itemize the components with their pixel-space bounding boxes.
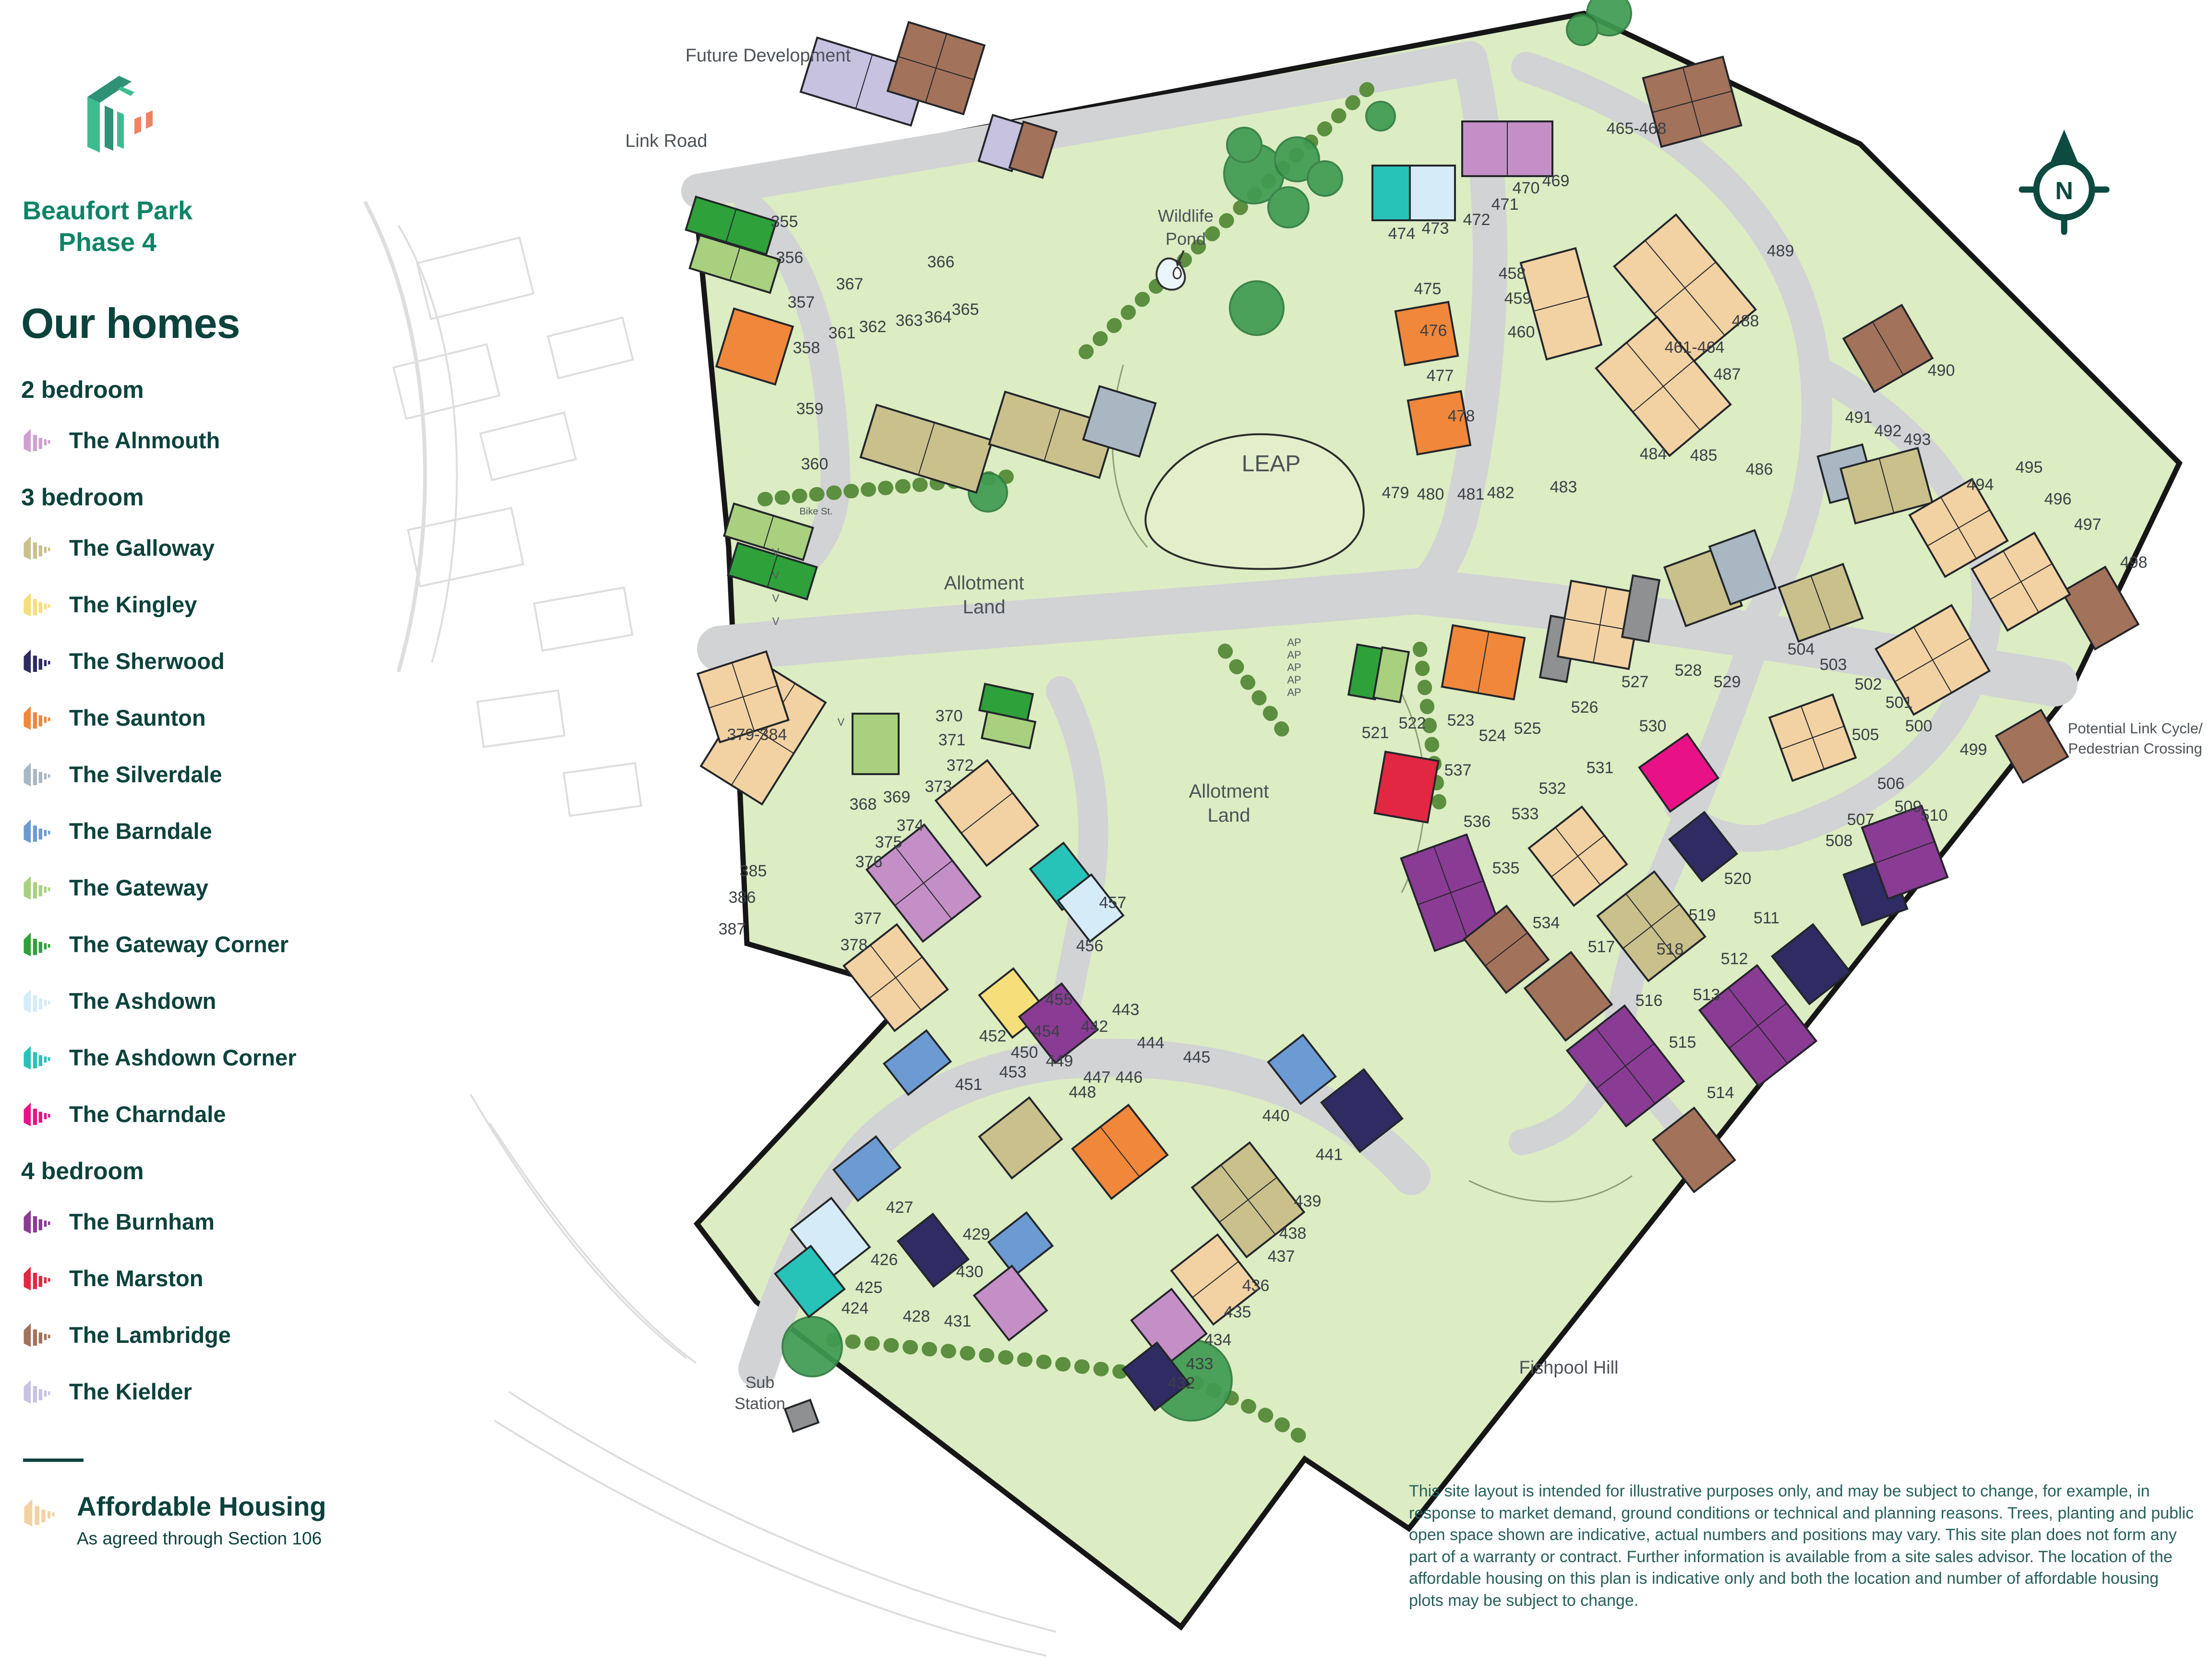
plot-number-375: 375 [875, 833, 902, 851]
plot-number-510: 510 [1921, 806, 1948, 825]
house-block-darkgray [785, 1400, 818, 1432]
plot-number-494: 494 [1967, 476, 1994, 494]
plot-number-490: 490 [1928, 361, 1955, 380]
plot-number-514: 514 [1707, 1084, 1734, 1102]
marker-ap: AP [1287, 649, 1301, 661]
plot-number-531: 531 [1587, 759, 1614, 777]
legend-sidebar: Beaufort Park Phase 4 Our homes 2 bedroo… [21, 67, 328, 1549]
legend-item-label: The Burnham [69, 1208, 215, 1235]
map-label-pond: Pond [1166, 229, 1206, 249]
legend-item-label: The Gateway Corner [69, 931, 289, 957]
plot-number-441: 441 [1316, 1146, 1343, 1164]
plot-number-482: 482 [1487, 484, 1515, 502]
plot-number-523: 523 [1447, 711, 1475, 729]
plot-number-435: 435 [1224, 1303, 1251, 1321]
plot-number-498: 498 [2120, 553, 2148, 572]
site-title-line2: Phase 4 [21, 227, 194, 259]
plot-number-427: 427 [886, 1198, 914, 1217]
affordable-housing-sublabel: As agreed through Section 106 [77, 1529, 326, 1549]
plot-number-443: 443 [1112, 1001, 1140, 1019]
house-block-marston [1375, 752, 1439, 822]
legend-item-the-alnmouth: The Alnmouth [21, 426, 328, 455]
legend-item-label: The Barndale [69, 818, 212, 844]
plot-number-436: 436 [1242, 1277, 1270, 1295]
plot-number-522: 522 [1399, 714, 1426, 732]
house-type-icon [21, 816, 53, 846]
plot-number-473: 473 [1422, 219, 1449, 238]
house-type-icon [21, 1207, 53, 1237]
plot-number-500: 500 [1905, 717, 1933, 735]
plot-number-360: 360 [801, 455, 829, 473]
plot-number-444: 444 [1137, 1034, 1165, 1052]
legend-item-label: The Marston [69, 1265, 203, 1291]
plot-number-454: 454 [1033, 1022, 1060, 1040]
house-type-icon [21, 986, 53, 1016]
plot-number-519: 519 [1689, 906, 1716, 924]
house-type-icon [21, 1495, 58, 1530]
map-label-wildlife: Wildlife [1158, 206, 1214, 226]
plot-number-536: 536 [1464, 813, 1491, 831]
legend-item-the-ashdown-corner: The Ashdown Corner [21, 1043, 328, 1073]
plot-number-372: 372 [947, 756, 974, 775]
plot-number-424: 424 [842, 1299, 869, 1317]
plot-number-386: 386 [729, 888, 756, 907]
plot-number-493: 493 [1904, 430, 1931, 449]
legend-divider [23, 1459, 84, 1462]
page-heading: Our homes [21, 299, 328, 348]
legend-item-the-charndale: The Charndale [21, 1100, 328, 1129]
legend-item-label: The Silverdale [69, 761, 222, 788]
plot-number-515: 515 [1669, 1033, 1696, 1052]
plot-number-499: 499 [1960, 741, 1987, 759]
house-block-ashdown [1410, 166, 1455, 220]
plot-number-481: 481 [1457, 485, 1485, 503]
plot-number-480: 480 [1417, 485, 1444, 503]
marker-ap: AP [1287, 686, 1301, 698]
legend-item-label: The Charndale [69, 1101, 226, 1127]
compass-north-icon: N [2022, 130, 2106, 232]
plot-number-497: 497 [2074, 515, 2102, 534]
plot-number-491: 491 [1845, 408, 1873, 427]
plot-number-425: 425 [855, 1279, 883, 1297]
map-label-future-development: Future Development [685, 46, 851, 66]
plot-number-429: 429 [963, 1225, 990, 1244]
plot-number-431: 431 [944, 1312, 972, 1330]
marker-v: V [838, 716, 845, 728]
legend-item-the-ashdown: The Ashdown [21, 986, 328, 1016]
plot-number-450: 450 [1011, 1043, 1038, 1062]
plot-number-465-468: 465-468 [1607, 120, 1667, 138]
svg-text:N: N [2055, 177, 2073, 205]
plot-number-448: 448 [1069, 1083, 1096, 1101]
plot-number-521: 521 [1362, 724, 1389, 742]
marker-ap: AP [1287, 661, 1301, 673]
house-type-icon [21, 930, 53, 959]
plot-number-452: 452 [979, 1027, 1007, 1045]
plot-number-456: 456 [1076, 937, 1104, 955]
map-label-leap: LEAP [1242, 451, 1301, 477]
plot-number-509: 509 [1895, 798, 1922, 816]
legend-item-affordable-housing: Affordable Housing As agreed through Sec… [21, 1491, 328, 1549]
house-block-saunton [1442, 625, 1525, 699]
map-label-bike-st-: Bike St. [800, 506, 833, 517]
legend-item-the-galloway: The Galloway [21, 533, 328, 563]
plot-number-451: 451 [955, 1076, 983, 1094]
legend-sections: 2 bedroomThe Alnmouth3 bedroomThe Gallow… [21, 376, 328, 1407]
plot-number-506: 506 [1877, 775, 1905, 793]
section-label-4-bedroom: 4 bedroom [21, 1157, 328, 1185]
plot-number-486: 486 [1746, 460, 1773, 478]
brand-logo-icon [73, 67, 169, 158]
house-type-icon [21, 1264, 53, 1293]
plot-number-485: 485 [1690, 446, 1718, 465]
plot-number-432: 432 [1168, 1374, 1195, 1392]
plot-number-533: 533 [1512, 805, 1539, 823]
map-label-allotment: Allotment [944, 573, 1024, 594]
plot-number-371: 371 [938, 731, 966, 749]
legend-item-label: The Kingley [69, 591, 197, 618]
plot-number-489: 489 [1767, 242, 1794, 260]
plot-number-477: 477 [1427, 367, 1454, 385]
plot-number-428: 428 [903, 1307, 930, 1326]
plot-number-367: 367 [836, 275, 864, 293]
plot-number-362: 362 [859, 318, 887, 336]
section-label-3-bedroom: 3 bedroom [21, 483, 328, 511]
map-label-sub: Sub [745, 1374, 775, 1392]
plot-number-378: 378 [841, 936, 868, 954]
plot-number-529: 529 [1714, 673, 1741, 691]
plot-number-437: 437 [1268, 1247, 1295, 1266]
site-title: Beaufort Park Phase 4 [21, 195, 194, 259]
plot-number-379-384: 379-384 [727, 726, 787, 744]
plot-number-492: 492 [1875, 422, 1902, 440]
house-type-icon [21, 1043, 53, 1073]
plot-number-525: 525 [1514, 719, 1541, 738]
plot-number-357: 357 [788, 293, 815, 311]
plot-number-535: 535 [1492, 859, 1520, 877]
plot-number-512: 512 [1721, 950, 1748, 968]
plot-number-368: 368 [850, 795, 877, 813]
plot-number-459: 459 [1504, 289, 1532, 308]
map-label-fishpool-hill: Fishpool Hill [1519, 1358, 1619, 1378]
plot-number-479: 479 [1382, 484, 1409, 502]
plot-number-472: 472 [1463, 211, 1491, 229]
house-type-icon [21, 646, 53, 676]
plot-number-434: 434 [1204, 1331, 1232, 1349]
plot-number-370: 370 [936, 707, 963, 725]
legend-item-the-lambridge: The Lambridge [21, 1320, 328, 1350]
marker-ap: AP [1287, 674, 1301, 686]
map-label-station: Station [734, 1395, 785, 1413]
plot-number-366: 366 [927, 253, 955, 271]
section-label-2-bedroom: 2 bedroom [21, 376, 328, 404]
plot-number-438: 438 [1279, 1224, 1307, 1243]
map-label-link-road: Link Road [625, 131, 707, 151]
plot-number-513: 513 [1693, 986, 1720, 1004]
marker-v: V [772, 546, 780, 558]
plot-number-507: 507 [1847, 811, 1875, 829]
plot-number-527: 527 [1622, 673, 1649, 691]
plot-number-455: 455 [1046, 991, 1073, 1009]
plot-number-501: 501 [1886, 694, 1913, 712]
affordable-housing-icon [21, 1495, 58, 1530]
plot-number-508: 508 [1826, 832, 1853, 850]
plot-number-469: 469 [1542, 172, 1570, 190]
plot-number-484: 484 [1640, 445, 1667, 463]
plot-number-503: 503 [1820, 656, 1847, 674]
plot-number-355: 355 [771, 213, 798, 231]
legend-item-label: The Alnmouth [69, 427, 220, 454]
plot-number-516: 516 [1635, 992, 1663, 1010]
plot-number-534: 534 [1533, 914, 1560, 932]
marker-v: V [772, 569, 780, 581]
plot-number-496: 496 [2044, 490, 2072, 508]
house-type-icon [21, 760, 53, 789]
house-type-icon [21, 533, 53, 563]
plot-number-524: 524 [1479, 727, 1506, 745]
plot-number-373: 373 [925, 777, 952, 796]
plot-number-460: 460 [1508, 323, 1535, 341]
plot-number-377: 377 [854, 909, 882, 928]
legend-item-label: The Gateway [69, 874, 208, 901]
plot-number-365: 365 [952, 300, 979, 319]
house-type-icon [21, 1320, 53, 1350]
map-label-allotment: Allotment [1189, 781, 1269, 802]
legend-item-the-silverdale: The Silverdale [21, 760, 328, 789]
plot-number-458: 458 [1499, 264, 1526, 283]
house-type-icon [21, 1377, 53, 1407]
marker-ap: AP [1287, 636, 1301, 648]
map-label-potential-link-cycle-: Potential Link Cycle/ [2068, 720, 2203, 737]
plot-number-483: 483 [1550, 478, 1577, 496]
plot-number-449: 449 [1046, 1052, 1073, 1070]
plot-number-530: 530 [1639, 717, 1667, 735]
plot-number-470: 470 [1513, 179, 1540, 197]
plot-number-502: 502 [1855, 675, 1882, 694]
legend-item-the-kingley: The Kingley [21, 590, 328, 620]
plot-number-356: 356 [776, 249, 804, 267]
plot-number-537: 537 [1444, 761, 1472, 779]
legend-item-the-marston: The Marston [21, 1264, 328, 1293]
plot-number-528: 528 [1675, 661, 1702, 680]
plot-number-385: 385 [740, 862, 767, 880]
plot-number-517: 517 [1588, 938, 1615, 956]
marker-v: V [772, 615, 780, 627]
legend-item-label: The Lambridge [69, 1322, 231, 1348]
plot-number-387: 387 [719, 920, 746, 938]
plot-number-446: 446 [1116, 1068, 1143, 1087]
legend-item-label: The Galloway [69, 535, 215, 561]
plot-number-532: 532 [1539, 779, 1566, 798]
site-title-line1: Beaufort Park [21, 195, 194, 227]
plot-number-511: 511 [1754, 909, 1779, 927]
house-type-icon [21, 703, 53, 733]
plot-number-495: 495 [2016, 458, 2043, 477]
plot-number-361: 361 [829, 324, 856, 342]
plot-number-488: 488 [1732, 312, 1759, 330]
plot-number-457: 457 [1099, 894, 1127, 912]
plot-number-426: 426 [871, 1251, 898, 1269]
house-type-icon [21, 590, 53, 620]
map-label-land: Land [963, 597, 1006, 618]
legend-item-label: The Ashdown [69, 988, 216, 1014]
legend-item-label: The Kielder [69, 1378, 192, 1405]
legend-item-the-gateway-corner: The Gateway Corner [21, 930, 328, 959]
house-type-icon [21, 1100, 53, 1129]
house-block-gateway [853, 714, 899, 774]
plot-number-440: 440 [1262, 1107, 1290, 1125]
plot-number-374: 374 [897, 816, 924, 835]
plot-number-461-464: 461-464 [1665, 338, 1725, 357]
plot-number-474: 474 [1388, 225, 1416, 243]
affordable-housing-label: Affordable Housing [77, 1491, 326, 1522]
plot-number-471: 471 [1491, 195, 1519, 214]
plot-number-358: 358 [793, 339, 820, 357]
plot-number-376: 376 [855, 853, 883, 871]
plot-number-476: 476 [1420, 322, 1447, 340]
house-type-icon [21, 426, 53, 455]
plot-number-526: 526 [1571, 698, 1599, 717]
house-type-icon [21, 873, 53, 903]
map-label-pedestrian-crossing: Pedestrian Crossing [2068, 740, 2202, 757]
plot-number-359: 359 [796, 400, 824, 418]
plot-number-445: 445 [1183, 1048, 1211, 1066]
legend-item-the-gateway: The Gateway [21, 873, 328, 903]
plot-number-363: 363 [896, 311, 923, 330]
plot-number-518: 518 [1657, 940, 1684, 958]
plot-number-369: 369 [883, 788, 911, 806]
disclaimer-text: This site layout is intended for illustr… [1409, 1481, 2196, 1612]
plot-number-520: 520 [1724, 870, 1752, 888]
plot-number-487: 487 [1714, 365, 1741, 383]
plot-number-478: 478 [1448, 407, 1475, 425]
marker-v: V [772, 592, 780, 604]
legend-item-the-burnham: The Burnham [21, 1207, 328, 1237]
site-plan-map: 3553563573583593603613623633643653663673… [0, 0, 2212, 1674]
plot-number-442: 442 [1081, 1017, 1108, 1036]
plot-number-430: 430 [956, 1263, 984, 1281]
plot-number-433: 433 [1186, 1355, 1214, 1373]
legend-item-the-sherwood: The Sherwood [21, 646, 328, 676]
plot-number-504: 504 [1788, 640, 1815, 658]
legend-item-label: The Ashdown Corner [69, 1044, 297, 1071]
plot-number-364: 364 [925, 308, 952, 326]
legend-item-label: The Saunton [69, 705, 206, 731]
plot-number-439: 439 [1294, 1192, 1322, 1210]
legend-item-the-saunton: The Saunton [21, 703, 328, 733]
plot-number-475: 475 [1414, 280, 1442, 298]
plot-number-453: 453 [999, 1063, 1027, 1081]
map-label-land: Land [1208, 805, 1250, 826]
legend-item-the-barndale: The Barndale [21, 816, 328, 846]
house-block-alnmouth [1462, 121, 1552, 176]
plot-number-505: 505 [1852, 726, 1879, 744]
legend-item-the-kielder: The Kielder [21, 1377, 328, 1407]
legend-item-label: The Sherwood [69, 648, 225, 674]
